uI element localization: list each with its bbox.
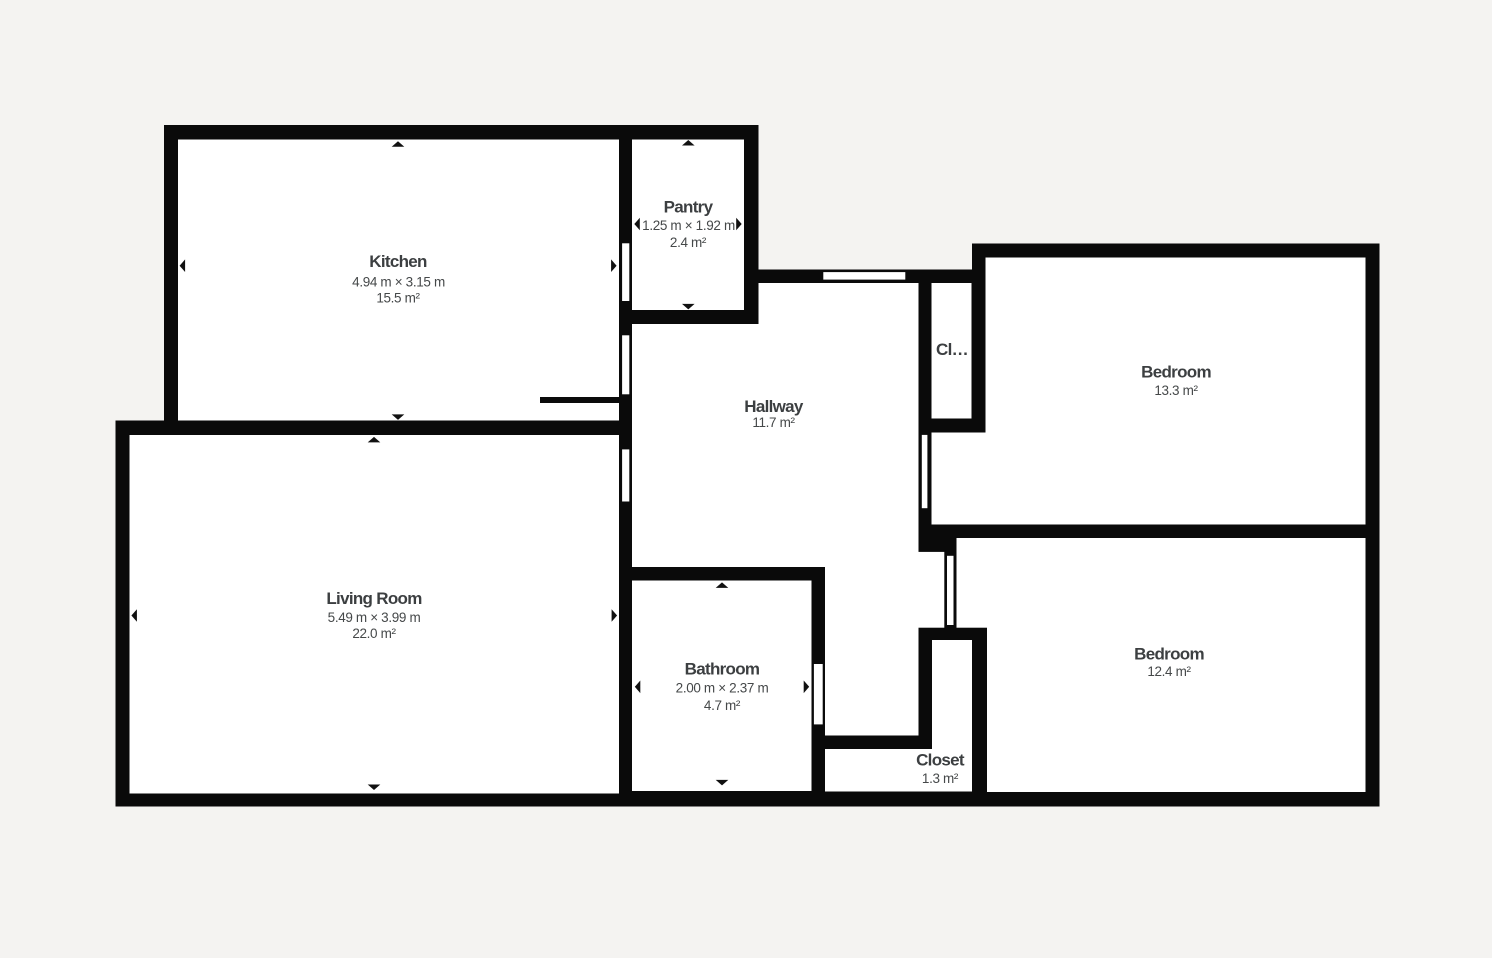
svg-text:15.5 m²: 15.5 m² xyxy=(376,291,420,306)
svg-text:Hallway: Hallway xyxy=(744,397,804,416)
svg-text:Closet: Closet xyxy=(916,750,965,769)
svg-text:12.4 m²: 12.4 m² xyxy=(1147,664,1191,679)
svg-text:Bedroom: Bedroom xyxy=(1134,645,1204,664)
svg-text:Kitchen: Kitchen xyxy=(369,252,427,271)
svg-text:1.3 m²: 1.3 m² xyxy=(922,771,959,786)
svg-text:Bedroom: Bedroom xyxy=(1141,363,1211,382)
svg-text:2.00 m × 2.37 m: 2.00 m × 2.37 m xyxy=(676,681,769,696)
svg-text:5.49 m × 3.99 m: 5.49 m × 3.99 m xyxy=(328,610,421,625)
svg-text:Bathroom: Bathroom xyxy=(685,659,760,678)
svg-text:1.25 m × 1.92 m: 1.25 m × 1.92 m xyxy=(642,218,735,233)
svg-text:11.7 m²: 11.7 m² xyxy=(752,415,795,430)
svg-text:Cl…: Cl… xyxy=(936,340,968,359)
svg-text:4.94 m × 3.15 m: 4.94 m × 3.15 m xyxy=(352,275,445,290)
svg-text:22.0 m²: 22.0 m² xyxy=(352,626,396,641)
svg-text:Living Room: Living Room xyxy=(326,589,422,608)
svg-text:2.4 m²: 2.4 m² xyxy=(670,235,707,250)
svg-text:4.7 m²: 4.7 m² xyxy=(704,698,741,713)
svg-text:13.3 m²: 13.3 m² xyxy=(1154,383,1198,398)
svg-text:Pantry: Pantry xyxy=(664,197,714,216)
